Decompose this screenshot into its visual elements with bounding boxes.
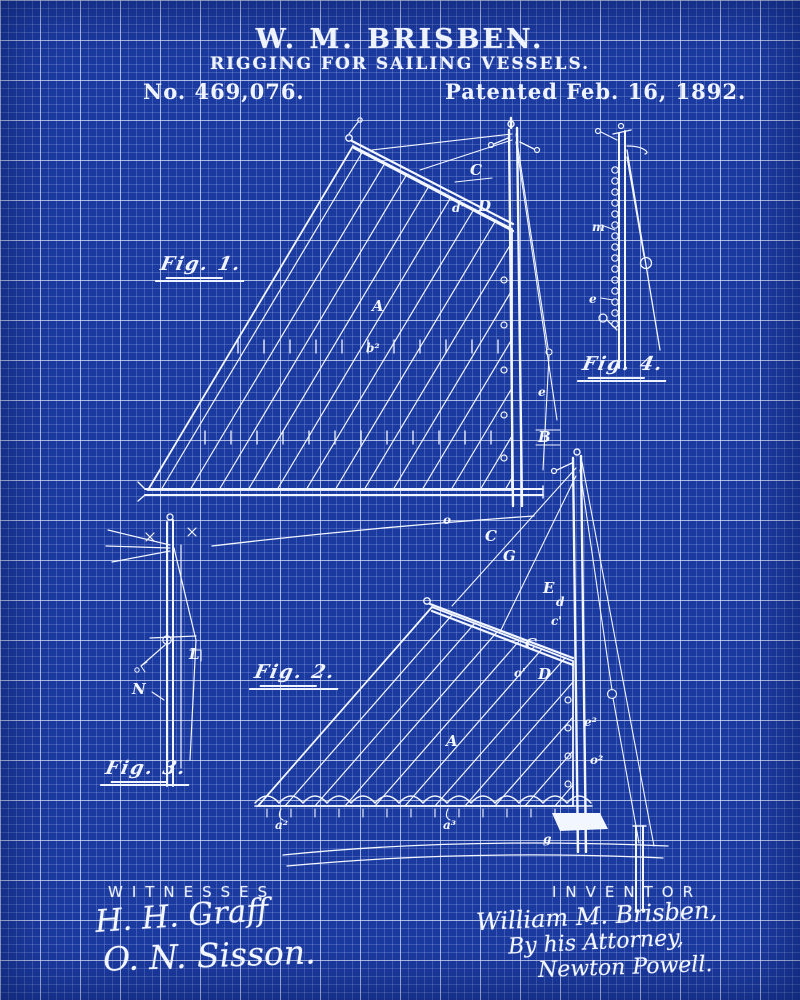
- fig3-caption: Fig. 3.: [100, 757, 195, 786]
- part-label: N: [131, 680, 147, 698]
- part-label: b²: [366, 341, 380, 355]
- fig1-drawing: [138, 118, 560, 546]
- part-label: C: [485, 527, 497, 545]
- part-label: e: [589, 292, 597, 306]
- part-label: C: [525, 635, 537, 653]
- fig4-caption: Fig. 4.: [577, 353, 672, 382]
- fig4-lacing-rings: [612, 167, 618, 327]
- fig4-mast: [596, 124, 648, 369]
- part-label: E: [542, 579, 555, 597]
- part-label: a³: [443, 818, 456, 832]
- part-label: G: [503, 547, 516, 565]
- fig4-drawing: [596, 124, 661, 369]
- fig1-caption: Fig. 1.: [155, 253, 250, 282]
- fig1-mast: [489, 118, 540, 506]
- part-label: C: [470, 161, 482, 179]
- part-label: o²: [590, 753, 603, 767]
- part-label: D: [537, 665, 551, 683]
- part-label: d: [556, 595, 565, 609]
- part-label: d': [452, 201, 464, 215]
- witness-signature-2: O. N. Sisson.: [102, 932, 316, 978]
- fig1-boom: [138, 482, 543, 501]
- fig2-boom: [255, 796, 592, 820]
- rigging-drawing: C d' D A b² e B o C G E d c' C D o' A e²…: [0, 0, 800, 1000]
- part-label: o: [443, 513, 451, 527]
- part-label: g: [543, 832, 551, 846]
- fig3-mast: [167, 514, 181, 786]
- fig2-caption: Fig. 2.: [249, 661, 344, 690]
- part-label: a²: [275, 818, 288, 832]
- part-label: e²: [584, 715, 597, 729]
- part-label: c': [551, 614, 562, 628]
- part-label: o': [514, 666, 526, 680]
- part-label: D: [477, 197, 491, 215]
- part-label: A: [444, 732, 458, 750]
- fig1-sail-outline: [148, 146, 512, 490]
- fig3-rigging: [106, 528, 201, 760]
- fig3-drawing: [106, 514, 201, 786]
- fig2-mast: [552, 449, 587, 852]
- fig4-stay: [599, 150, 660, 350]
- fig2-gaff: [424, 598, 573, 665]
- part-label: B: [537, 428, 551, 446]
- part-label: L: [188, 645, 200, 663]
- part-label: e: [538, 385, 546, 399]
- blueprint-sheet: W. M. BRISBEN. RIGGING FOR SAILING VESSE…: [0, 0, 800, 1000]
- part-label: m: [592, 220, 605, 234]
- fig2-mast-hoops: [565, 697, 571, 787]
- part-label: A: [370, 297, 384, 315]
